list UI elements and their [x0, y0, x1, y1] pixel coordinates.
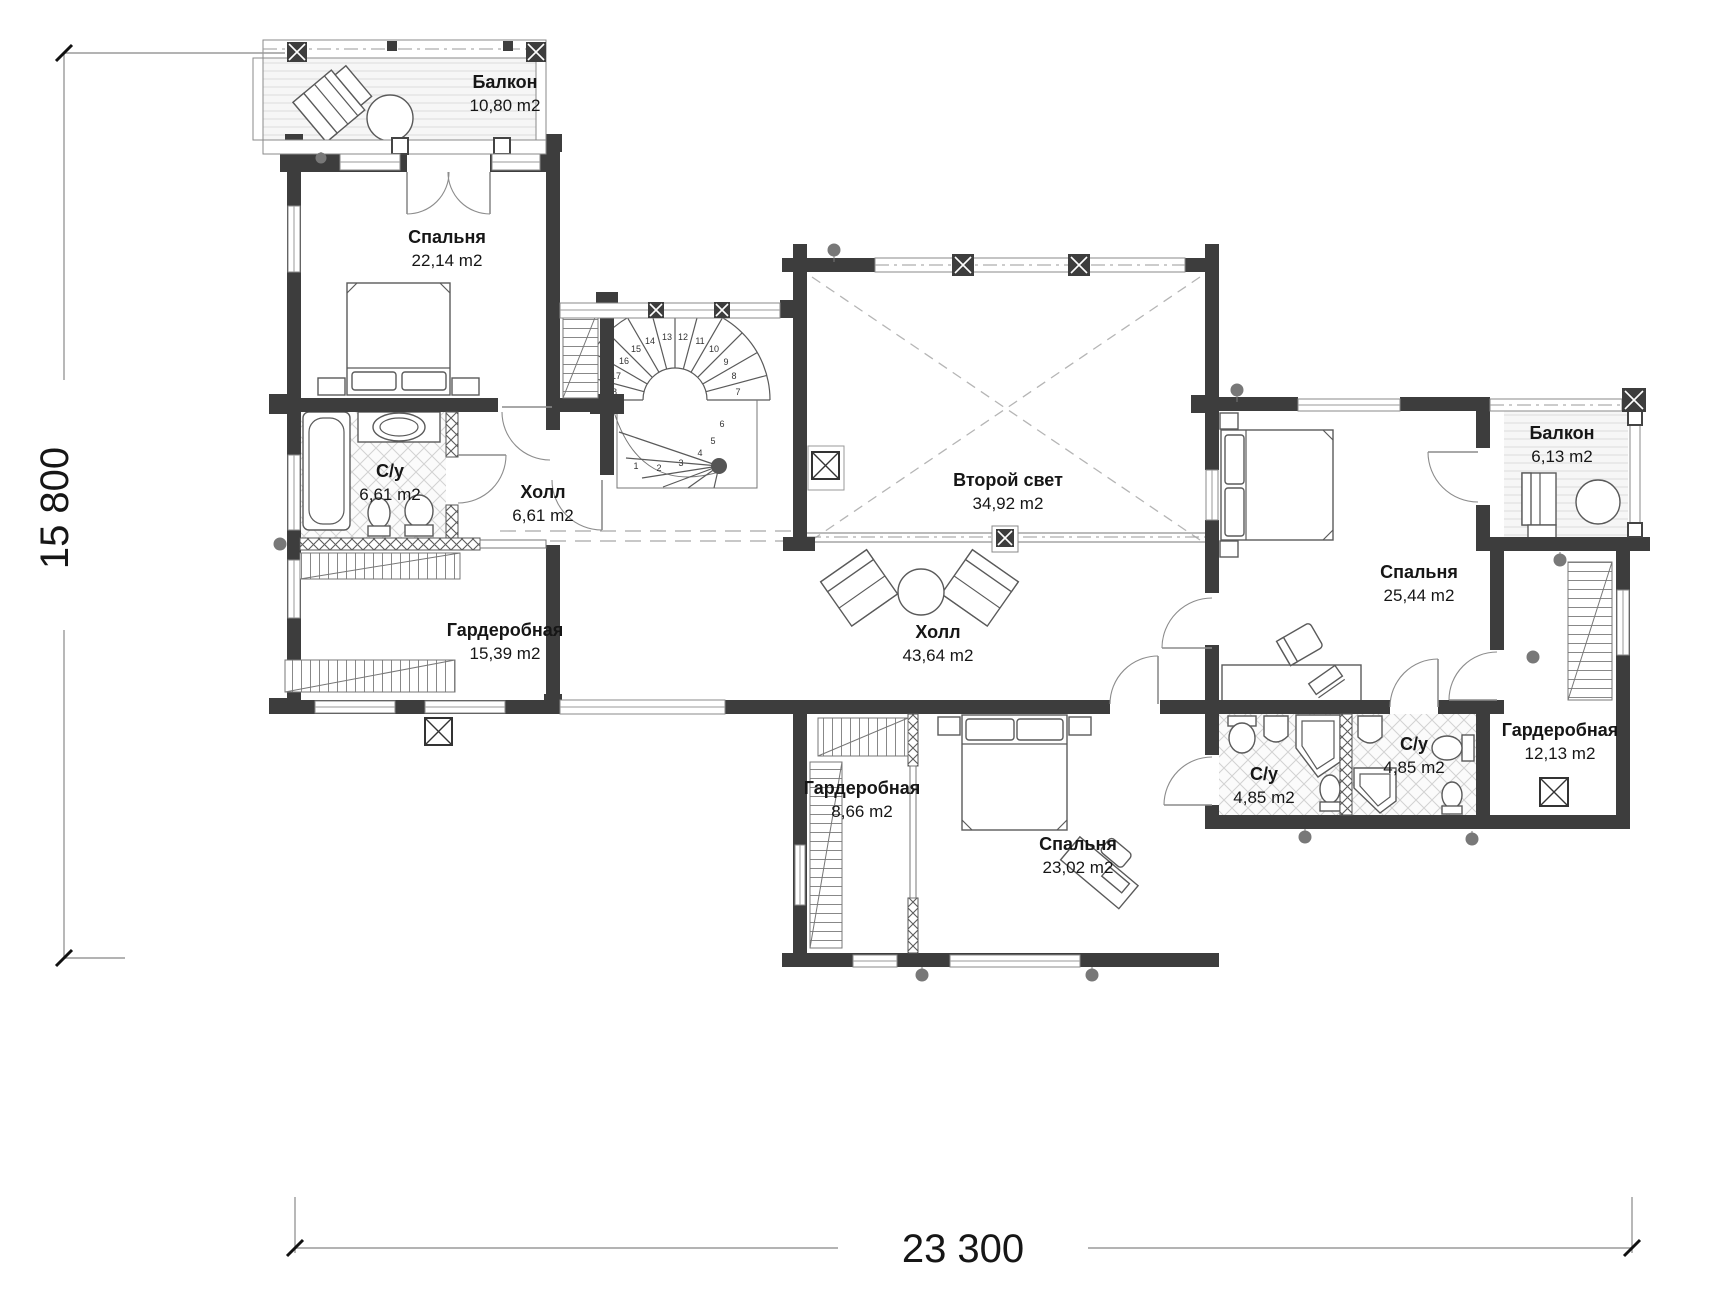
- window: [340, 154, 400, 170]
- posts-and-markers: [274, 42, 1646, 981]
- svg-text:12: 12: [678, 332, 688, 342]
- window: [853, 955, 897, 967]
- window: [288, 206, 300, 272]
- door: [458, 455, 506, 503]
- corner-post-icon: [526, 42, 546, 62]
- vertical-dimension-label: 15 800: [33, 447, 77, 569]
- svg-text:8: 8: [731, 371, 736, 381]
- pillow: [1017, 719, 1063, 740]
- clothes-rail: [818, 718, 908, 756]
- bidet: [1442, 806, 1462, 814]
- bed-double-bottom: [938, 715, 1091, 830]
- nightstand: [1220, 413, 1238, 429]
- balustrade-post-icon: [1628, 523, 1642, 537]
- window: [795, 845, 805, 905]
- toilet: [1432, 736, 1462, 760]
- sink: [1264, 716, 1288, 742]
- svg-text:Второй свет: Второй свет: [953, 470, 1063, 490]
- svg-text:3: 3: [678, 458, 683, 468]
- room-label-bedroom-top-left: Спальня 22,14 m2: [408, 227, 486, 270]
- nightstand: [938, 717, 960, 735]
- nightstand: [318, 378, 345, 395]
- clothes-rail: [1568, 562, 1612, 700]
- bathtub: [303, 412, 350, 530]
- svg-text:1: 1: [633, 461, 638, 471]
- pillow: [352, 372, 396, 390]
- clothes-rail: [563, 310, 598, 398]
- svg-text:С/у: С/у: [1250, 764, 1278, 784]
- svg-text:Гардеробная: Гардеробная: [804, 778, 920, 798]
- post-icon: [503, 41, 513, 51]
- window: [1206, 470, 1218, 520]
- svg-text:Балкон: Балкон: [472, 72, 537, 92]
- window: [1298, 399, 1400, 411]
- shaft-icon: [425, 718, 452, 745]
- corner-post-icon: [1622, 388, 1646, 412]
- svg-text:12,13 m2: 12,13 m2: [1525, 744, 1596, 763]
- room-label-hall-small: Холл 6,61 m2: [512, 482, 573, 525]
- balustrade-post-icon: [494, 138, 510, 154]
- room-label-bedroom-right: Спальня 25,44 m2: [1380, 562, 1458, 605]
- post-icon: [648, 302, 664, 318]
- window: [1617, 590, 1629, 655]
- door: [1162, 598, 1212, 648]
- dimension-annotations: 15 800 23 300: [30, 45, 1640, 1274]
- round-table: [898, 569, 944, 615]
- svg-text:34,92 m2: 34,92 m2: [973, 494, 1044, 513]
- window: [315, 701, 395, 713]
- svg-text:9: 9: [723, 357, 728, 367]
- corner-post-icon: [287, 42, 307, 62]
- bidet: [1442, 782, 1462, 808]
- desk-chair: [1277, 622, 1324, 665]
- bed-double-top-left: [318, 283, 479, 395]
- room-label-wardrobe-left: Гардеробная 15,39 m2: [447, 620, 563, 663]
- toilet: [1229, 723, 1255, 753]
- svg-text:6,13 m2: 6,13 m2: [1531, 447, 1592, 466]
- pillow: [1225, 488, 1244, 536]
- shaft-icon: [808, 446, 844, 490]
- bidet: [1320, 775, 1340, 803]
- svg-text:Спальня: Спальня: [408, 227, 486, 247]
- toilet: [1462, 735, 1474, 761]
- svg-text:Балкон: Балкон: [1529, 423, 1594, 443]
- svg-text:Спальня: Спальня: [1380, 562, 1458, 582]
- svg-text:6,61 m2: 6,61 m2: [359, 485, 420, 504]
- balustrade-post-icon: [392, 138, 408, 154]
- svg-text:15,39 m2: 15,39 m2: [470, 644, 541, 663]
- armchair: [821, 550, 898, 626]
- pillow: [402, 372, 446, 390]
- svg-text:8,66 m2: 8,66 m2: [831, 802, 892, 821]
- stair-step-numbers: 1 2 3 4 5 6 7 8 9 10 11 12 13 14 15 16 1…: [607, 332, 741, 473]
- room-label-second-light: Второй свет 34,92 m2: [953, 470, 1063, 513]
- svg-text:4,85 m2: 4,85 m2: [1233, 788, 1294, 807]
- svg-text:14: 14: [645, 336, 655, 346]
- french-door: [407, 172, 490, 214]
- svg-text:22,14 m2: 22,14 m2: [412, 251, 483, 270]
- bed-double-right: [1220, 413, 1333, 557]
- horizontal-dimension-label: 23 300: [902, 1227, 1024, 1271]
- clothes-rail: [285, 660, 455, 692]
- floor-plan-drawing: 1 2 3 4 5 6 7 8 9 10 11 12 13 14 15 16 1…: [0, 0, 1733, 1300]
- svg-text:15: 15: [631, 344, 641, 354]
- sink-vanity: [358, 412, 440, 442]
- pillow: [966, 719, 1014, 740]
- svg-text:10: 10: [709, 344, 719, 354]
- nightstand: [1069, 717, 1091, 735]
- post-icon: [1068, 254, 1090, 276]
- svg-text:6: 6: [719, 419, 724, 429]
- armchair: [941, 550, 1018, 626]
- svg-text:25,44 m2: 25,44 m2: [1384, 586, 1455, 605]
- svg-text:6,61 m2: 6,61 m2: [512, 506, 573, 525]
- svg-text:С/у: С/у: [376, 461, 404, 481]
- svg-text:Спальня: Спальня: [1039, 834, 1117, 854]
- floor-plan-page: 1 2 3 4 5 6 7 8 9 10 11 12 13 14 15 16 1…: [0, 0, 1733, 1300]
- door: [1110, 656, 1158, 704]
- room-label-hall-big: Холл 43,64 m2: [903, 622, 974, 665]
- svg-text:13: 13: [662, 332, 672, 342]
- post-icon: [992, 526, 1018, 552]
- door: [1164, 757, 1212, 805]
- window: [288, 455, 300, 530]
- nightstand: [452, 378, 479, 395]
- clothes-rail: [300, 553, 460, 579]
- door: [502, 407, 552, 460]
- svg-text:Холл: Холл: [915, 622, 960, 642]
- window: [950, 955, 1080, 967]
- shaft-icon: [1540, 778, 1568, 806]
- svg-text:5: 5: [710, 436, 715, 446]
- round-table: [1576, 480, 1620, 524]
- window: [492, 154, 540, 170]
- svg-text:23,02 m2: 23,02 m2: [1043, 858, 1114, 877]
- svg-text:Гардеробная: Гардеробная: [447, 620, 563, 640]
- door: [1390, 659, 1438, 707]
- svg-text:2: 2: [656, 463, 661, 473]
- round-table: [367, 95, 413, 141]
- stair-lower-treads: [619, 432, 719, 488]
- post-icon: [952, 254, 974, 276]
- svg-text:43,64 m2: 43,64 m2: [903, 646, 974, 665]
- svg-text:7: 7: [735, 387, 740, 397]
- svg-text:4: 4: [697, 448, 702, 458]
- door: [1449, 652, 1497, 700]
- post-icon: [387, 41, 397, 51]
- svg-text:4,85 m2: 4,85 m2: [1383, 758, 1444, 777]
- svg-text:10,80 m2: 10,80 m2: [470, 96, 541, 115]
- sink: [1358, 716, 1382, 743]
- svg-text:С/у: С/у: [1400, 734, 1428, 754]
- nightstand: [1220, 541, 1238, 557]
- anchor-bolt-icon: [274, 152, 1566, 981]
- room-label-wardrobe-right: Гардеробная 12,13 m2: [1502, 720, 1618, 763]
- pillow: [1225, 435, 1244, 484]
- balustrade-post-icon: [1628, 411, 1642, 425]
- svg-text:16: 16: [619, 356, 629, 366]
- door: [1428, 452, 1478, 502]
- stair-newel-post: [711, 458, 727, 474]
- desk: [1222, 665, 1361, 702]
- svg-text:11: 11: [695, 336, 704, 346]
- post-icon: [714, 302, 730, 318]
- svg-text:Гардеробная: Гардеробная: [1502, 720, 1618, 740]
- window: [288, 560, 300, 618]
- bidet: [1320, 802, 1340, 811]
- window: [425, 701, 505, 713]
- svg-text:Холл: Холл: [520, 482, 565, 502]
